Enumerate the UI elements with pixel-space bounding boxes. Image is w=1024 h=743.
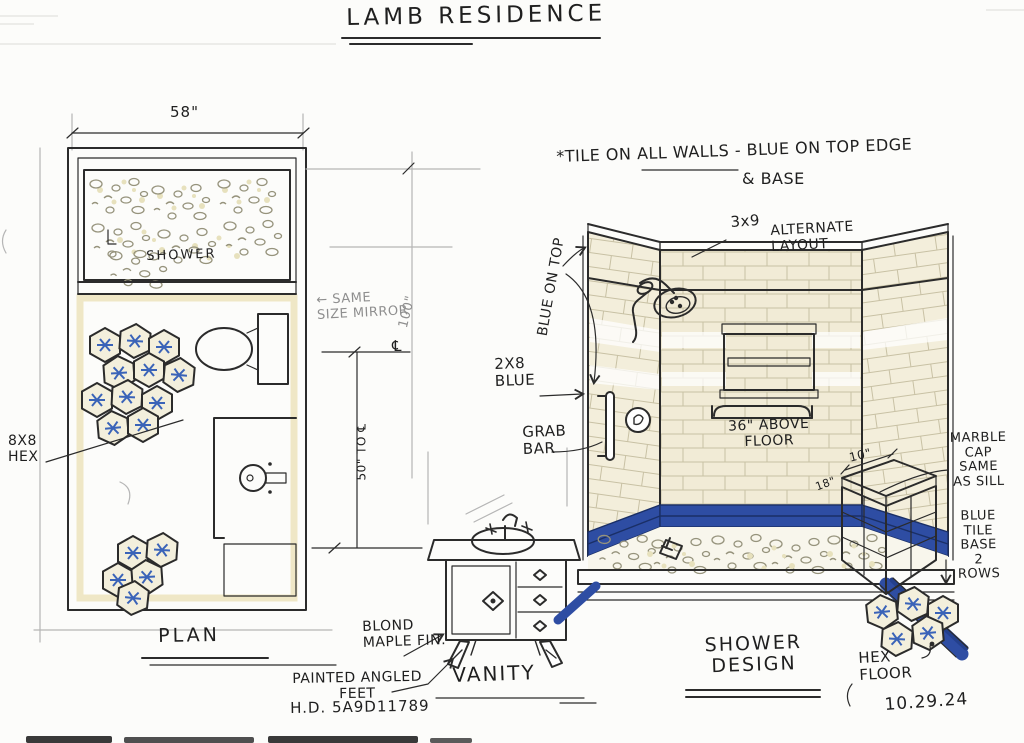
tile-size-label: 3x9: [730, 212, 761, 231]
drawing-sheet: LAMB RESIDENCE *TILE ON ALL WALLS - BLUE…: [0, 0, 1024, 743]
blue-accent-label: 2X8 BLUE: [494, 355, 536, 390]
mirror-note-label: ← SAME SIZE MIRROR: [316, 289, 409, 323]
grab-bar-label: GRAB BAR: [522, 422, 567, 457]
vanity-handles: [483, 570, 546, 631]
plan-drawing: [34, 114, 336, 665]
finish-note-label: BLOND MAPLE FIN.: [362, 617, 446, 651]
plan-hex-tiles: [82, 323, 195, 616]
sku-note-label: H.D. 5A9D11789: [290, 698, 430, 717]
tile-note-line2: & BASE: [742, 170, 805, 188]
vanity-title: VANITY: [452, 661, 536, 686]
plan-shower-area: [84, 170, 290, 289]
shower-valve: [626, 408, 650, 432]
hex-size-label: 8X8 HEX: [8, 434, 38, 465]
vanity-height-dim: 50" TO ℄: [355, 424, 368, 481]
grab-height-label: 36" ABOVE FLOOR: [716, 416, 822, 451]
toilet-symbol: [196, 314, 288, 384]
vanity-cabinet: [446, 560, 566, 640]
plan-width-dim: 58": [170, 104, 199, 121]
tile-base-label: BLUE TILE BASE 2 ROWS: [948, 509, 1009, 583]
centerline-symbol: ℄: [392, 338, 402, 355]
title-underline: [342, 38, 600, 44]
plan-shower-label: SHOWER: [146, 248, 217, 265]
plan-sink-symbol: [240, 462, 286, 494]
sheet-title: LAMB RESIDENCE: [346, 1, 606, 31]
plan-title: PLAN: [158, 625, 220, 647]
hex-floor-label: HEX FLOOR: [858, 647, 913, 683]
marble-cap-label: MARBLE CAP SAME AS SILL: [942, 431, 1015, 490]
shower-design-title: SHOWER DESIGN: [688, 631, 819, 678]
alternate-layout-label: ALTERNATE LAYOUT: [770, 220, 855, 256]
